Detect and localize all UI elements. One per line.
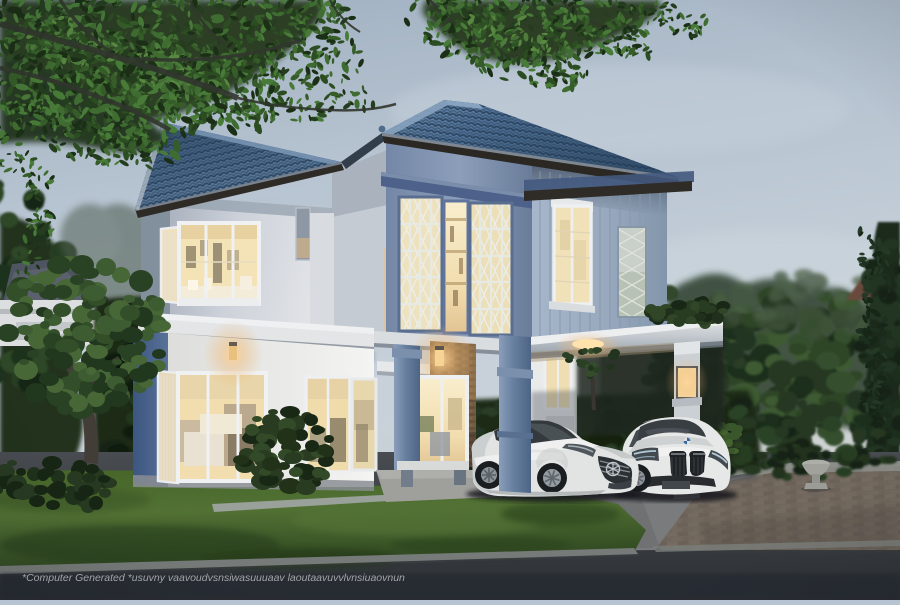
svg-text:*Computer Generated *usuvny va: *Computer Generated *usuvny vaavoudvsnsi… <box>22 572 405 584</box>
